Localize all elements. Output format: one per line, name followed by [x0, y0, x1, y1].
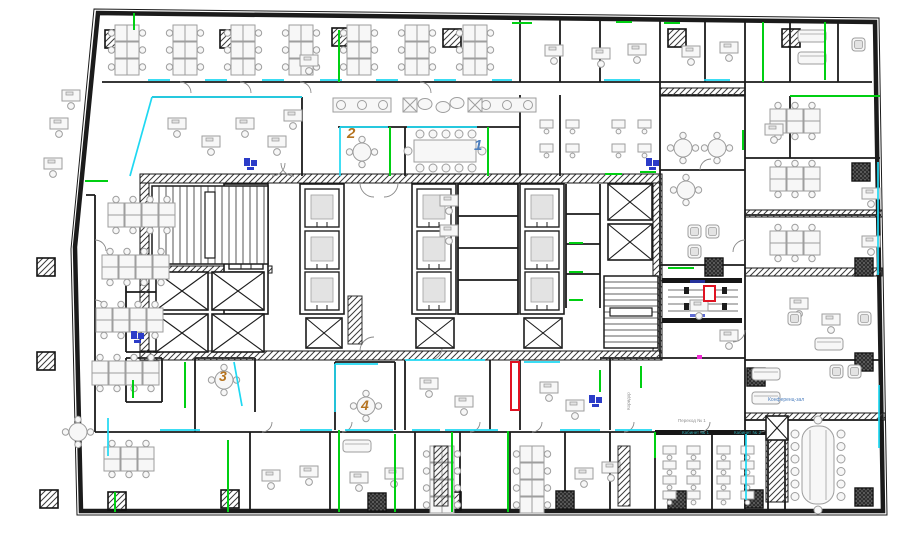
desk-pair — [398, 42, 435, 58]
column-dark — [852, 163, 870, 181]
desk-small — [687, 461, 700, 475]
desk-pair — [340, 59, 377, 75]
lounge-bench — [333, 98, 391, 112]
desk-pair — [136, 248, 152, 285]
desk-pair — [770, 224, 786, 261]
elevator-car — [525, 189, 559, 227]
desk-small — [741, 476, 754, 490]
desk-single — [284, 110, 302, 129]
shaft-x-box — [212, 314, 264, 352]
chair — [468, 164, 476, 172]
room-1-label: 1 — [474, 137, 482, 154]
cabinet-rack — [434, 446, 448, 506]
blue-equipment — [244, 158, 257, 170]
desk-small — [717, 476, 730, 490]
desk-small — [741, 446, 754, 460]
desk-small — [741, 461, 754, 475]
desk-pair — [513, 446, 550, 462]
sofa — [752, 368, 780, 380]
blue-equipment-part — [131, 331, 137, 339]
elevator-car — [525, 231, 559, 269]
desk-single — [628, 44, 646, 63]
column-hatched — [37, 258, 55, 276]
round-table — [670, 174, 701, 205]
round-table — [62, 416, 93, 447]
desk-pair — [787, 224, 803, 261]
column-dark — [855, 258, 873, 276]
lounge-bench — [478, 98, 536, 112]
shaft-x-box — [766, 416, 788, 440]
desk-pair — [102, 248, 118, 285]
armchair — [858, 312, 871, 325]
round-table — [701, 132, 732, 163]
room-2-label: 2 — [346, 125, 356, 142]
armchair — [848, 365, 861, 378]
blue-equipment-part — [653, 160, 659, 166]
desk-small — [717, 491, 730, 505]
desk-pair — [770, 160, 786, 197]
desk-small — [717, 446, 730, 460]
shaft-x-box — [608, 224, 652, 260]
desk-small — [638, 144, 651, 158]
shaft-x-box — [608, 184, 652, 220]
desk-single — [300, 466, 318, 485]
cabinet-rack — [348, 296, 362, 344]
desk-small — [687, 491, 700, 505]
desk-small — [540, 120, 553, 134]
blue-equipment-part — [589, 395, 595, 403]
chair — [837, 430, 845, 438]
desk-single — [168, 118, 186, 137]
armchair — [688, 225, 701, 238]
round-table — [667, 132, 698, 163]
desk-pair — [787, 160, 803, 197]
floor-plan-drawing: 1 2 3 4 Конференц-зал Переход № 1 Кабине… — [0, 0, 900, 545]
corridor-label: Коридор — [626, 392, 631, 410]
desk-single — [566, 400, 584, 419]
desk-pair — [104, 440, 120, 477]
desk-small — [566, 144, 579, 158]
desk-small — [638, 120, 651, 134]
desk-pair — [125, 196, 141, 233]
desk-single — [575, 468, 593, 487]
column-dark — [368, 493, 386, 511]
desk-single — [720, 42, 738, 61]
shaft-x-box — [306, 318, 342, 348]
shaft-x-box — [524, 318, 562, 348]
chair — [442, 164, 450, 172]
desk-small — [663, 461, 676, 475]
chair — [814, 506, 822, 514]
red-wall-marker — [511, 362, 519, 410]
desk-single — [765, 124, 783, 143]
desk-single — [44, 158, 62, 177]
blue-equipment — [646, 158, 659, 170]
desk-small — [687, 476, 700, 490]
elevator-car — [417, 231, 451, 269]
chair — [791, 468, 799, 476]
shaft-x-box — [212, 272, 264, 310]
stair-divider — [205, 192, 215, 258]
chair — [791, 493, 799, 501]
desk-pair — [96, 301, 112, 338]
desk-pair — [121, 440, 137, 477]
desk-single — [682, 46, 700, 65]
lounge-pouf — [418, 99, 432, 110]
desk-small — [687, 446, 700, 460]
blue-equipment-part — [138, 333, 144, 339]
desk-pair — [456, 42, 493, 58]
desk-small — [612, 120, 625, 134]
sofa — [343, 440, 371, 452]
lounge-pouf — [450, 98, 464, 109]
desk-pair — [224, 59, 261, 75]
desk-small — [663, 476, 676, 490]
desk-single — [420, 378, 438, 397]
meeting-table — [414, 140, 476, 162]
magenta-marker — [697, 355, 702, 359]
column-hatched — [37, 352, 55, 370]
staircase — [604, 276, 658, 348]
elevator-car — [305, 231, 339, 269]
blue-equipment-part — [251, 160, 257, 166]
chair — [791, 455, 799, 463]
desk-single — [592, 48, 610, 67]
desk-pair — [119, 248, 135, 285]
desk-small — [663, 446, 676, 460]
shaft-x-box — [156, 314, 208, 352]
sofa — [798, 30, 826, 42]
interior-walls — [86, 18, 885, 512]
chair — [791, 480, 799, 488]
column-hatched — [108, 492, 126, 510]
desk-pair — [456, 59, 493, 75]
cabinet-1-label: Кабинет № 1 — [682, 430, 709, 435]
glass-partition — [234, 362, 242, 406]
elevator-car — [305, 189, 339, 227]
lounge-pouf — [436, 102, 450, 113]
chair — [814, 416, 822, 424]
desk-small — [540, 144, 553, 158]
glass-partition — [130, 97, 152, 176]
armchair — [688, 245, 701, 258]
chair — [455, 164, 463, 172]
red-gate-marker — [704, 286, 715, 301]
desk-single — [602, 462, 620, 481]
desk-small — [612, 144, 625, 158]
desk-pair — [166, 59, 203, 75]
blue-equipment-part — [244, 158, 250, 166]
column-hatched — [40, 490, 58, 508]
chair — [429, 164, 437, 172]
gate-label-smudge-upper — [690, 280, 705, 283]
desk-single — [822, 314, 840, 333]
desk-single — [455, 396, 473, 415]
desk-small — [717, 461, 730, 475]
armchair — [830, 365, 843, 378]
desk-single — [350, 472, 368, 491]
desk-single — [268, 136, 286, 155]
desk-single — [262, 470, 280, 489]
chair — [837, 443, 845, 451]
blue-equipment-part — [649, 167, 656, 170]
desk-pair — [282, 25, 319, 41]
desk-pair — [398, 25, 435, 41]
elevator-car — [305, 272, 339, 310]
walkway-label: Переход № 1 — [678, 418, 706, 423]
chair — [837, 455, 845, 463]
stair-divider — [610, 308, 652, 316]
blue-equipment — [589, 395, 602, 407]
blue-equipment-part — [134, 340, 141, 343]
desk-pair — [109, 354, 125, 391]
chair — [416, 130, 424, 138]
desk-pair — [398, 59, 435, 75]
blue-equipment-part — [592, 404, 599, 407]
desk-pair — [804, 224, 820, 261]
conference-room-table — [791, 416, 845, 514]
elevator-car — [417, 272, 451, 310]
desk-single — [540, 382, 558, 401]
conference-room-label: Конференц-зал — [768, 397, 804, 403]
chair — [791, 430, 799, 438]
chair — [837, 480, 845, 488]
cabinet-rack — [618, 446, 630, 506]
side-table — [403, 98, 417, 112]
desk-pair — [108, 196, 124, 233]
column-hatched — [782, 29, 800, 47]
sofa — [798, 52, 826, 64]
column-dark — [556, 491, 574, 509]
desk-pair — [108, 59, 145, 75]
chair — [416, 164, 424, 172]
elevator-car — [525, 272, 559, 310]
desk-pair — [456, 25, 493, 41]
conference-table — [802, 426, 834, 504]
column-hatched — [221, 490, 239, 508]
desk-pair — [804, 160, 820, 197]
desk-small — [566, 120, 579, 134]
chair — [429, 130, 437, 138]
blue-equipment-part — [247, 167, 254, 170]
floor-plan-canvas: 1 2 3 4 Конференц-зал Переход № 1 Кабине… — [0, 0, 900, 545]
column-dark — [705, 258, 723, 276]
chair — [837, 493, 845, 501]
armchair — [788, 312, 801, 325]
desk-pair — [166, 25, 203, 41]
chair — [442, 130, 450, 138]
desk-single — [720, 330, 738, 349]
desk-single — [236, 118, 254, 137]
desk-single — [202, 136, 220, 155]
shaft-x-box — [416, 318, 454, 348]
column-dark — [855, 488, 873, 506]
desk-pair — [513, 480, 550, 496]
desk-pair — [513, 463, 550, 479]
blue-equipment-part — [646, 158, 652, 166]
desk-pair — [166, 42, 203, 58]
desk-single — [62, 90, 80, 109]
desk-single — [50, 118, 68, 137]
sofa — [815, 338, 843, 350]
armchair — [852, 38, 865, 51]
room-4-label: 4 — [360, 397, 369, 413]
desk-pair — [804, 102, 820, 139]
chair — [837, 468, 845, 476]
chair — [455, 130, 463, 138]
desk-pair — [138, 440, 154, 477]
column-hatched — [668, 29, 686, 47]
armchair — [706, 225, 719, 238]
cabinet-2-label: Кабинет № 2 — [734, 430, 761, 435]
chair — [404, 147, 412, 155]
chair — [791, 443, 799, 451]
blue-equipment-part — [596, 397, 602, 403]
side-table — [468, 98, 482, 112]
room-3-label: 3 — [219, 368, 227, 384]
